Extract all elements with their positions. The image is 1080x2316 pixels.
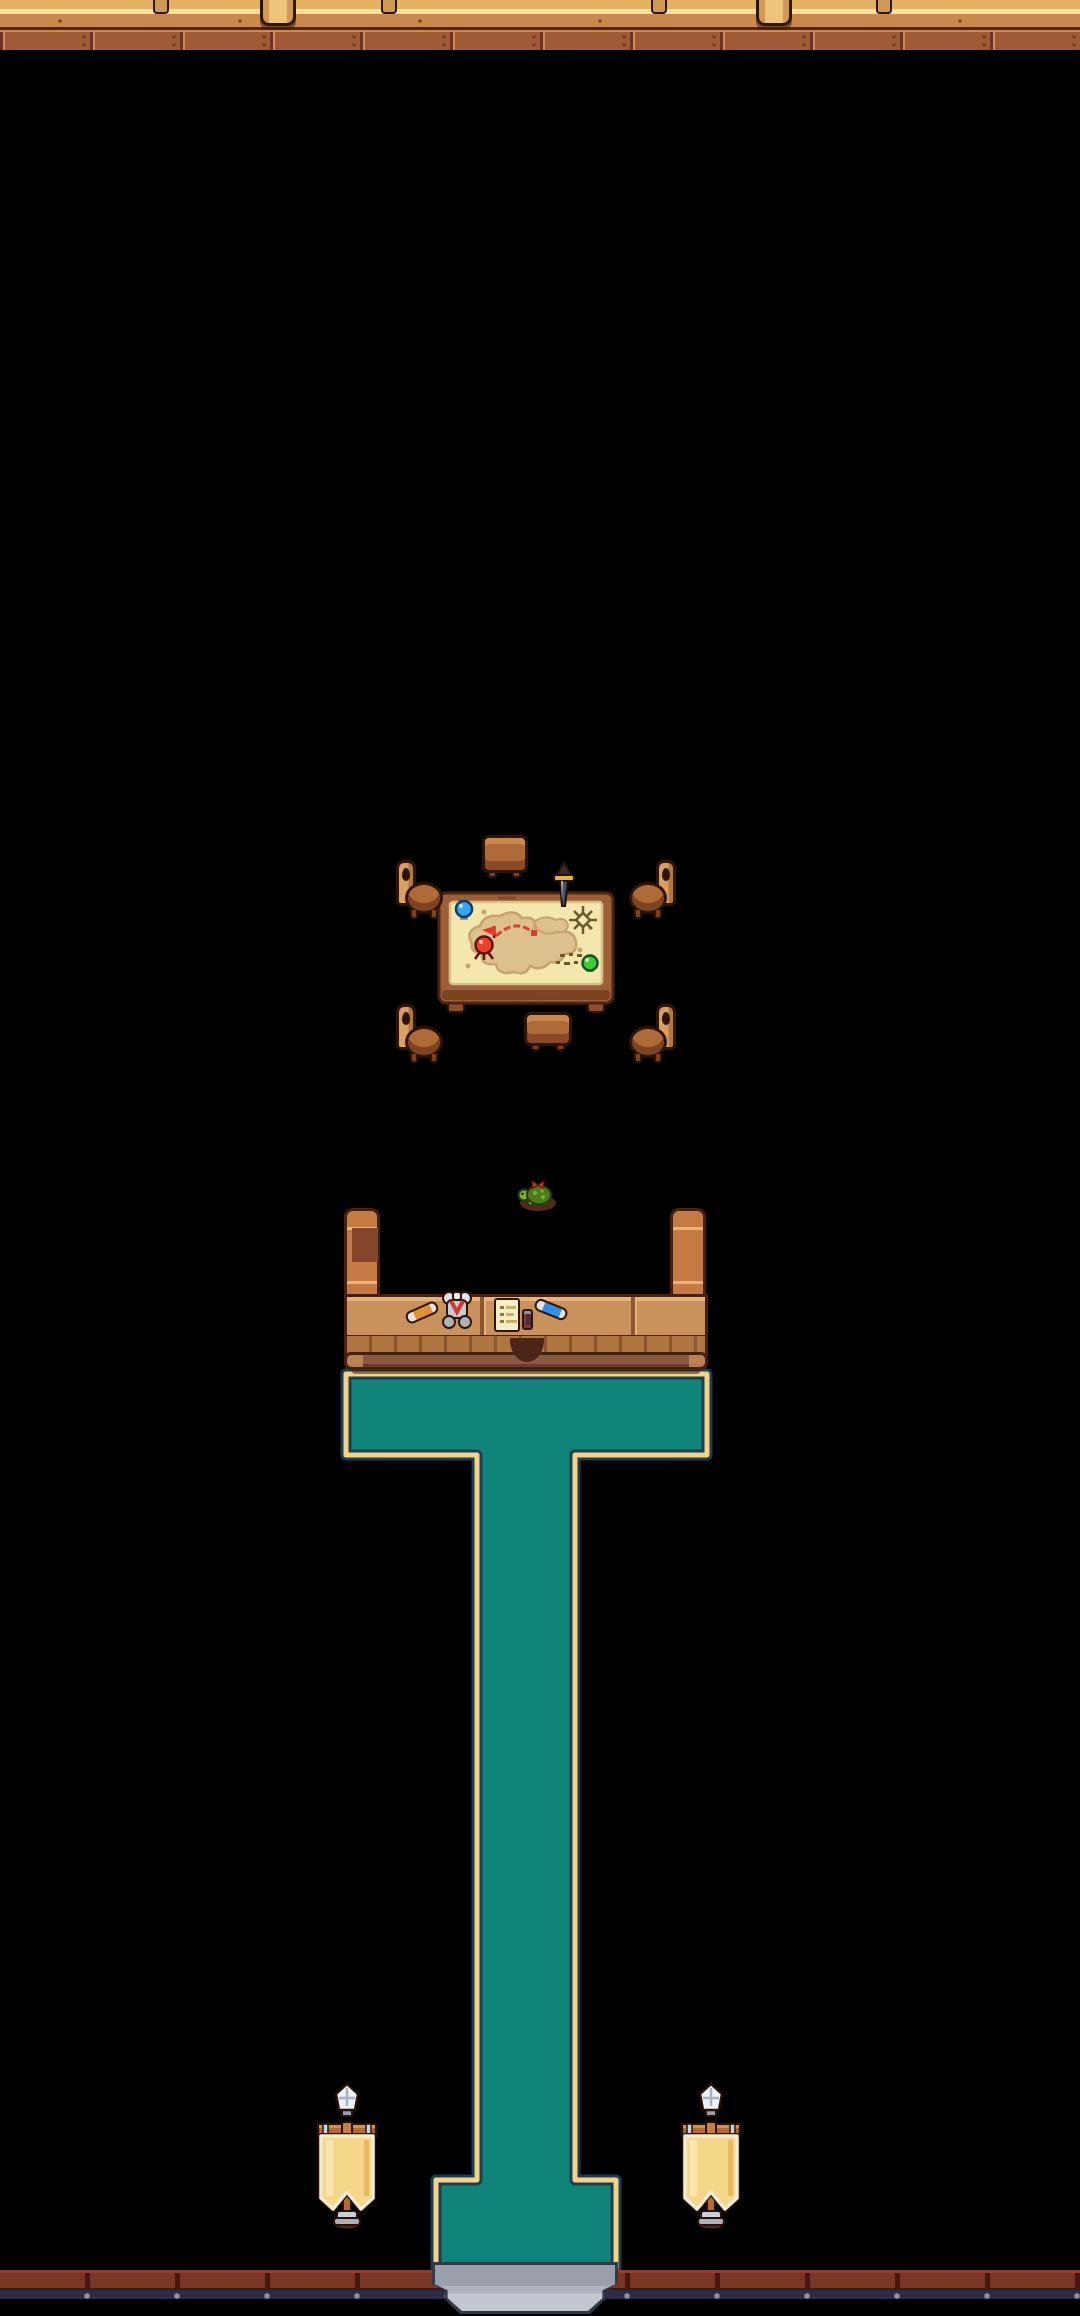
chair-leg	[634, 1054, 642, 1063]
chair-leg	[430, 910, 438, 919]
game-scene	[0, 0, 1080, 2316]
wall-post-small	[651, 0, 667, 14]
chair-northeast[interactable]	[624, 860, 676, 920]
banner-foot-icon	[698, 2211, 724, 2225]
chair-back-hole	[402, 868, 410, 881]
map-pin-green	[583, 956, 598, 973]
map-table[interactable]	[438, 892, 614, 1016]
wall-banner-right	[680, 2080, 742, 2232]
paper-list-item[interactable]	[494, 1298, 520, 1332]
wall-post-small	[876, 0, 892, 14]
dagger-icon[interactable]	[550, 860, 578, 908]
chair-back-hole	[662, 868, 670, 881]
treasure-map	[450, 901, 602, 984]
doorway-step-face	[435, 2265, 615, 2311]
chair-back-hole	[662, 1012, 670, 1025]
chair-leg	[654, 1054, 662, 1063]
wall-post-large	[756, 0, 792, 26]
banner-finial-icon	[700, 2084, 722, 2116]
chair-leg	[634, 910, 642, 919]
chair-leg	[654, 910, 662, 919]
potion-vial-item[interactable]	[522, 1309, 533, 1330]
wall-banner-left	[316, 2080, 378, 2232]
chair-leg	[410, 910, 418, 919]
bench-south[interactable]	[524, 1012, 572, 1046]
bench-north[interactable]	[482, 835, 528, 873]
wall-post-small	[153, 0, 169, 14]
route-waypoint	[531, 930, 537, 936]
wall-post-small	[381, 0, 397, 14]
chair-southwest[interactable]	[396, 1004, 448, 1064]
doorway-step[interactable]	[432, 2262, 618, 2314]
banner-foot-icon	[334, 2211, 360, 2225]
chair-southeast[interactable]	[624, 1004, 676, 1064]
runner-carpet	[0, 0, 1080, 2316]
map-pin-red	[475, 937, 493, 961]
counter-seam	[631, 1297, 635, 1335]
chair-leg	[410, 1054, 418, 1063]
chair-back-hole	[402, 1012, 410, 1025]
north-wall-ledge	[0, 14, 1080, 30]
counter-arm-shadow	[352, 1228, 378, 1262]
turtle-npc[interactable]	[516, 1180, 560, 1212]
armor-bundle-item[interactable]	[441, 1288, 473, 1332]
chair-northwest[interactable]	[396, 860, 448, 920]
wall-post-large	[260, 0, 296, 26]
chair-leg	[430, 1054, 438, 1063]
counter-seam	[480, 1297, 484, 1335]
banner-finial-icon	[336, 2084, 358, 2116]
counter-arm-right	[670, 1208, 706, 1306]
